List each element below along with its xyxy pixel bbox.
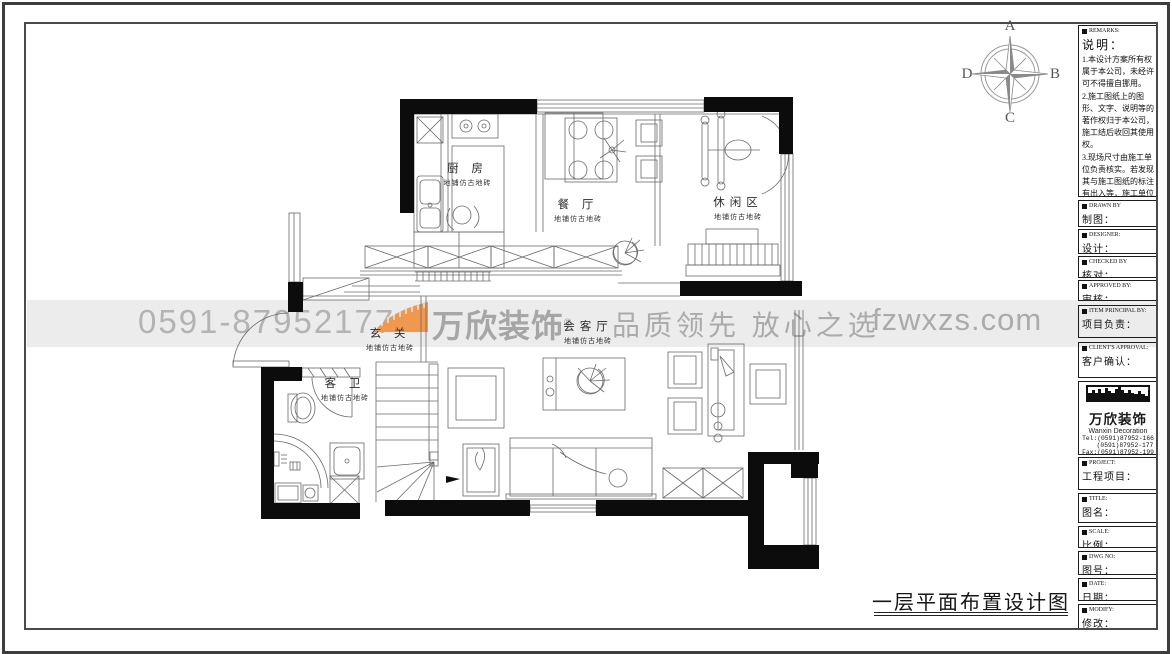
room-label-leisure: 休闲区地铺仿古地砖 bbox=[688, 194, 788, 222]
title-underline-1 bbox=[874, 612, 1068, 613]
label-square-icon bbox=[1082, 204, 1087, 209]
company-name-en: Wanxin Decoration bbox=[1082, 428, 1154, 435]
label-square-icon bbox=[1082, 582, 1087, 587]
room-label-dining: 餐 厅地铺仿古地砖 bbox=[528, 196, 628, 224]
field-modify: MODIFY: 修改： bbox=[1078, 604, 1158, 630]
remarks-line-1: 1.本设计方案所有权属于本公司，未经许可不得擅自挪用。 bbox=[1082, 54, 1154, 90]
compass-north-label: A bbox=[1003, 18, 1017, 35]
title-underline-2 bbox=[874, 615, 1068, 616]
company-tel-2: (0591)87952-177 bbox=[1082, 442, 1154, 449]
field-date: DATE: 日期： bbox=[1078, 578, 1158, 601]
field-dwg-no: DWG NO: 图号： bbox=[1078, 551, 1158, 575]
compass-west-label: D bbox=[960, 66, 974, 83]
company-skyline-icon: ® bbox=[1086, 385, 1150, 402]
label-square-icon bbox=[1082, 284, 1087, 289]
label-square-icon bbox=[1082, 497, 1087, 502]
label-square-icon bbox=[1082, 233, 1087, 238]
room-label-kitchen: 厨 房地铺仿古地砖 bbox=[425, 160, 510, 188]
room-label-bath: 客 卫地铺仿古地砖 bbox=[300, 375, 390, 403]
label-square-icon bbox=[1082, 260, 1087, 265]
label-square-icon bbox=[1082, 555, 1087, 560]
field-scale: SCALE: 比例： bbox=[1078, 526, 1158, 548]
remarks-label-en: REMARKS: bbox=[1082, 28, 1154, 34]
sheet-title: 一层平面布置设计图 bbox=[872, 586, 1070, 615]
company-tel-1: Tel:(0591)87952-166 bbox=[1082, 435, 1154, 442]
company-fax: Fax:(0591)87952-199 bbox=[1082, 449, 1154, 455]
room-label-living: 会客厅地铺仿古地砖 bbox=[538, 318, 638, 346]
label-square-icon bbox=[1082, 309, 1087, 314]
watermark-slogan: 品质领先 放心之选 bbox=[612, 304, 880, 344]
field-designer: DESIGNER: 设计： bbox=[1078, 229, 1158, 254]
field-client-approval: CLIENT'S APPROVAL: 客户确认： bbox=[1078, 342, 1158, 378]
remarks-line-3: 3.现场尺寸由施工单位负责核实。若发现其与施工图纸的标注有出入等，施工单位有责任… bbox=[1082, 152, 1154, 197]
remarks-box: REMARKS: 说明： 1.本设计方案所有权属于本公司，未经许可不得擅自挪用。… bbox=[1078, 25, 1158, 197]
watermark-website: fzwxzs.com bbox=[872, 302, 1042, 338]
field-item-principal: ITEM PRINCIPAL BY: 项目负责： bbox=[1078, 305, 1158, 338]
compass-south-label: C bbox=[1003, 110, 1017, 127]
remarks-line-2: 2.施工图纸上的图形、文字、说明等的著作权归于本公司，施工结后收回其使用权。 bbox=[1082, 91, 1154, 151]
compass-rose: A B C D bbox=[958, 22, 1062, 126]
label-square-icon bbox=[1082, 461, 1087, 466]
compass-east-label: B bbox=[1048, 66, 1062, 83]
label-square-icon bbox=[1082, 29, 1087, 34]
field-approved-by: APPROVED BY: 审核： bbox=[1078, 280, 1158, 301]
registered-mark: ® bbox=[1146, 386, 1149, 391]
label-square-icon bbox=[1082, 530, 1087, 535]
company-name: 万欣装饰 bbox=[1082, 408, 1154, 428]
field-project: PROJECT: 工程项目： bbox=[1078, 457, 1158, 490]
field-drawn-by: DRAWN BY 制图： bbox=[1078, 200, 1158, 227]
title-block: REMARKS: 说明： 1.本设计方案所有权属于本公司，未经许可不得擅自挪用。… bbox=[1078, 25, 1159, 632]
label-square-icon bbox=[1082, 608, 1087, 613]
label-square-icon bbox=[1082, 346, 1087, 351]
field-title: TITLE: 图名： bbox=[1078, 493, 1158, 523]
drawing-sheet: 0591-87952177 万欣装饰® 品质领先 放心之选 fzwxzs.com bbox=[0, 0, 1172, 654]
room-label-entry: 玄 关地铺仿古地砖 bbox=[345, 325, 435, 353]
remarks-label-zh: 说明： bbox=[1082, 36, 1154, 53]
field-checked-by: CHECKED BY 核对： bbox=[1078, 256, 1158, 278]
company-logo-box: ® 万欣装饰 Wanxin Decoration Tel:(0591)87952… bbox=[1078, 381, 1158, 455]
